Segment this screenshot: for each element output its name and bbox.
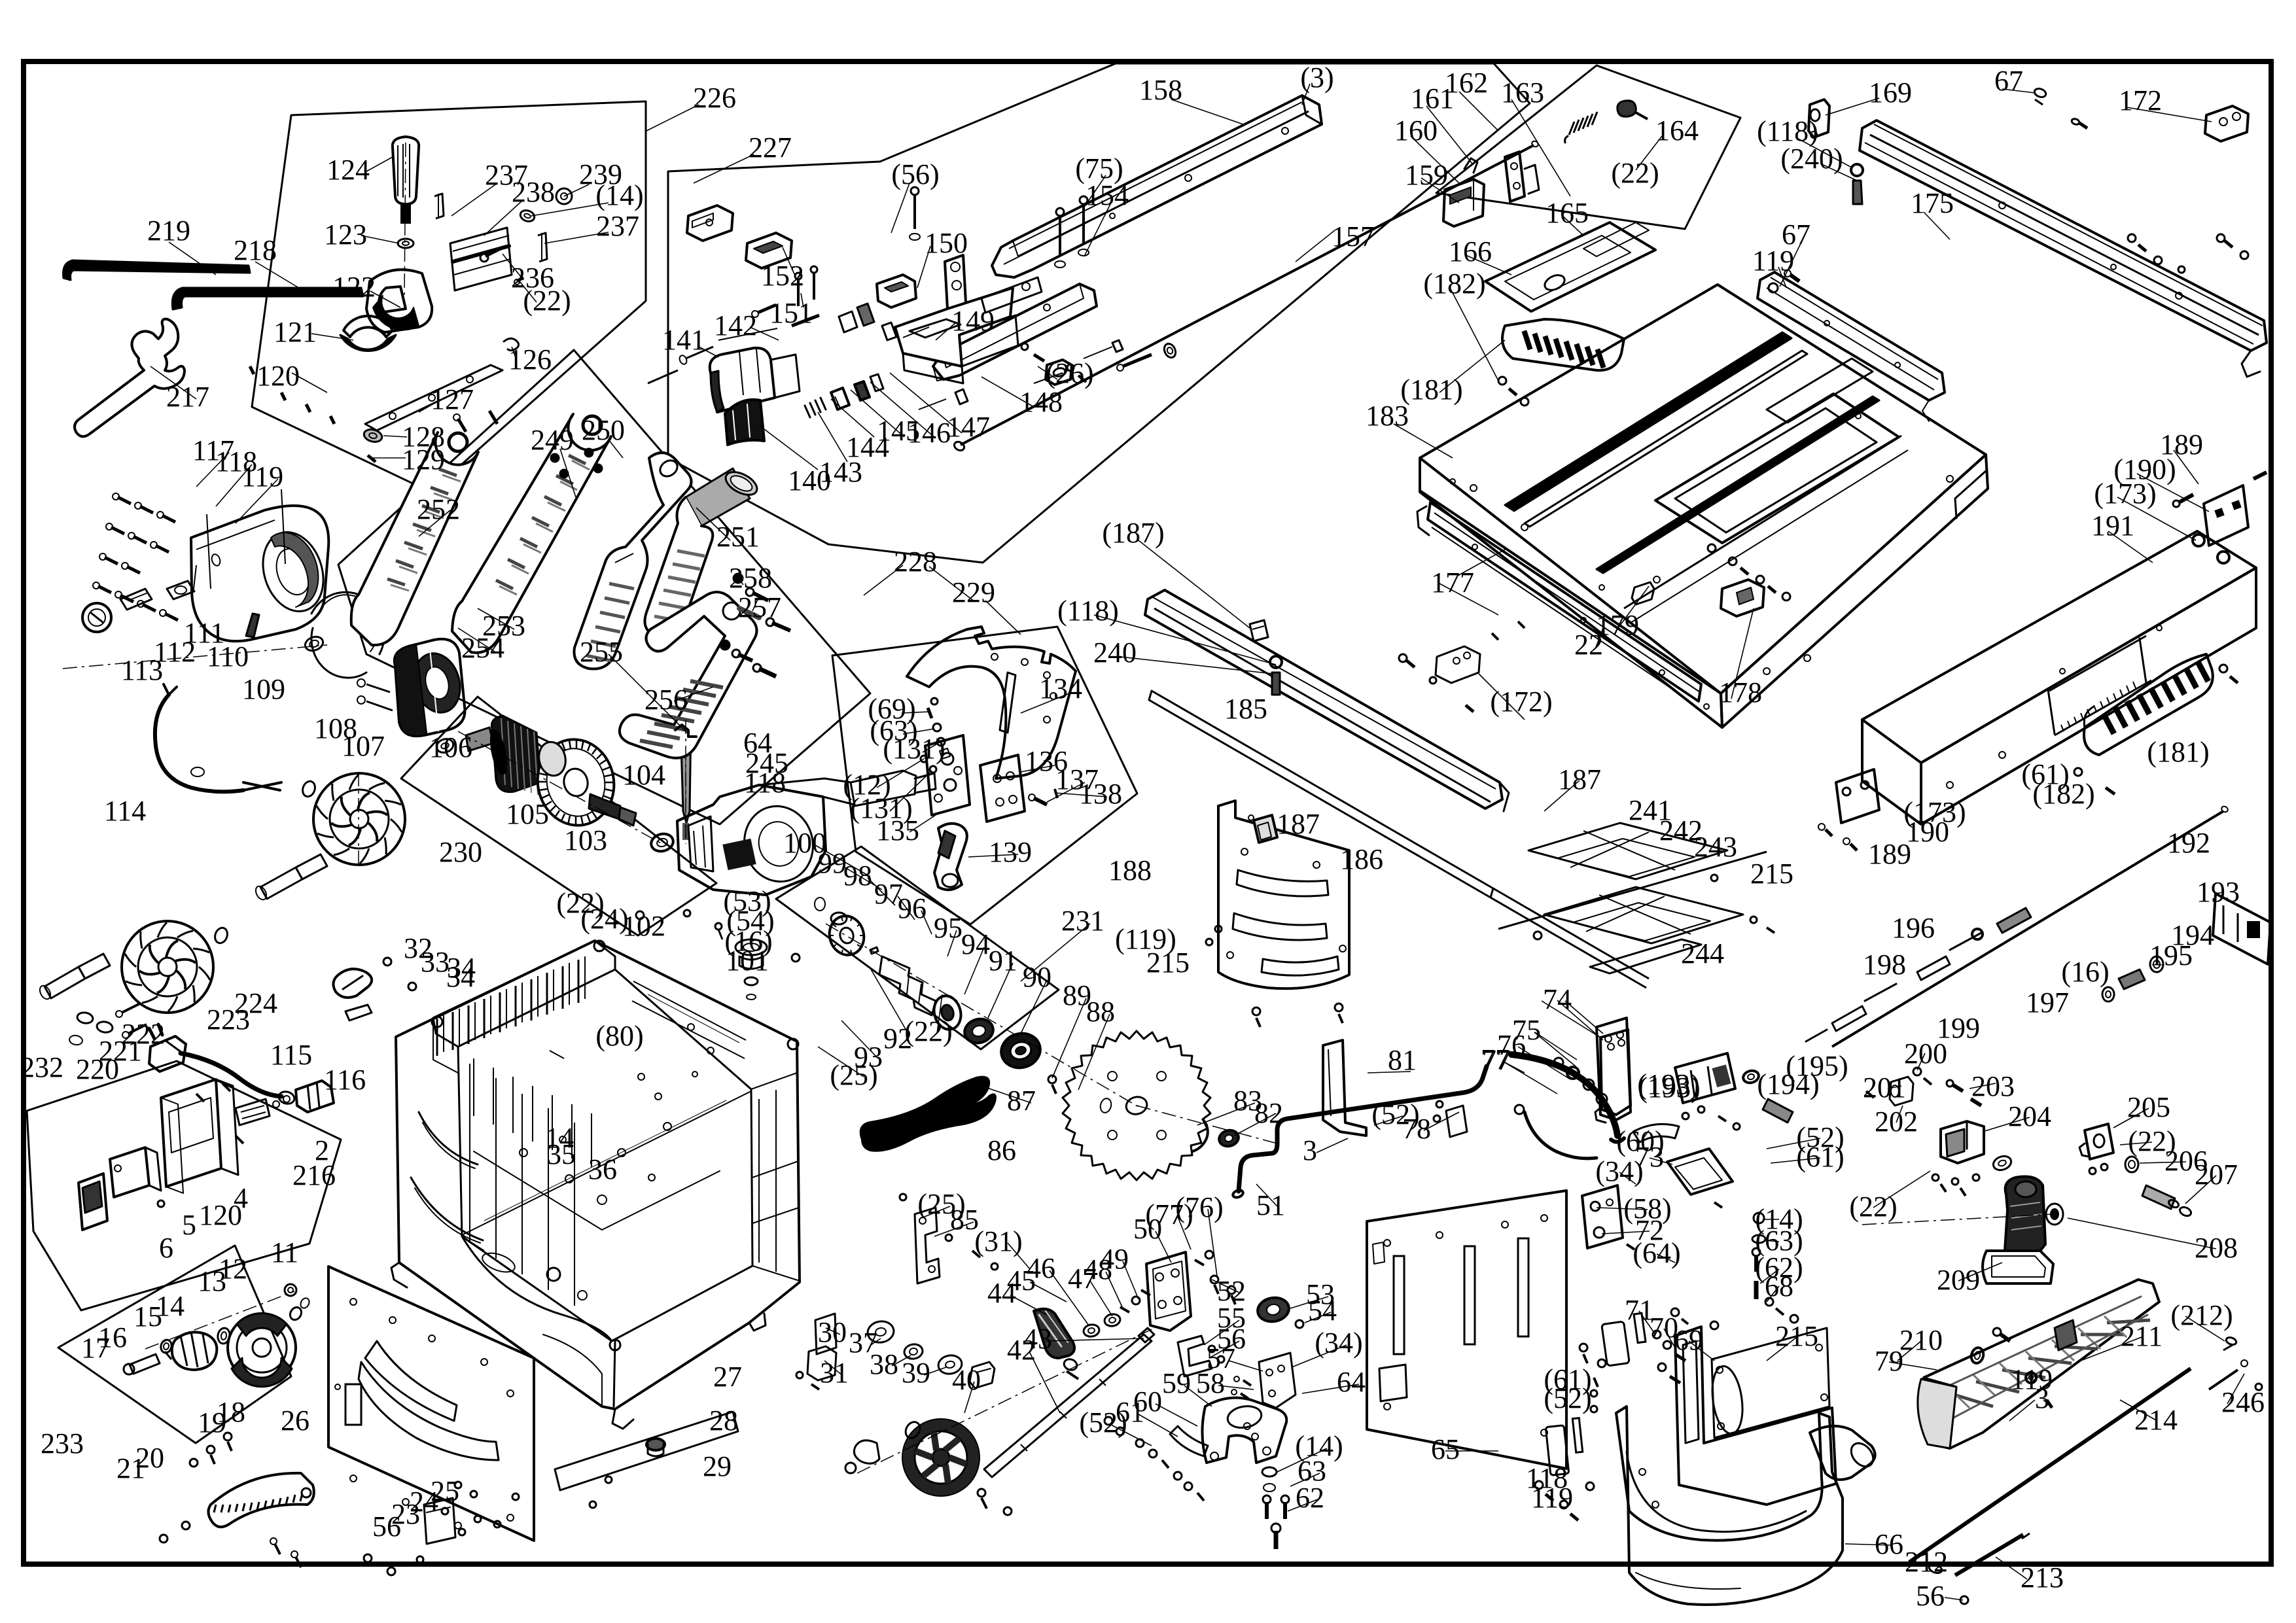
svg-text:123: 123: [324, 218, 367, 251]
svg-text:119: 119: [241, 461, 283, 493]
svg-text:134: 134: [1039, 672, 1082, 705]
svg-text:211: 211: [2121, 1320, 2163, 1352]
svg-text:203: 203: [1971, 1070, 2015, 1102]
svg-text:29: 29: [703, 1450, 732, 1482]
svg-text:215: 215: [1146, 947, 1190, 979]
svg-text:96: 96: [898, 892, 927, 924]
svg-text:138: 138: [1079, 778, 1122, 810]
svg-text:197: 197: [2026, 986, 2069, 1019]
svg-text:86: 86: [987, 1134, 1016, 1166]
svg-text:82: 82: [1254, 1097, 1283, 1129]
svg-text:28: 28: [709, 1405, 738, 1437]
svg-text:(181): (181): [1400, 374, 1462, 406]
svg-text:(61): (61): [1796, 1141, 1844, 1173]
svg-text:135: 135: [876, 814, 919, 846]
svg-text:105: 105: [506, 798, 549, 830]
svg-text:229: 229: [952, 576, 995, 608]
svg-text:150: 150: [925, 227, 968, 259]
svg-text:202: 202: [1875, 1106, 1918, 1138]
svg-text:192: 192: [2167, 827, 2210, 859]
svg-text:(22): (22): [1849, 1191, 1897, 1223]
svg-text:146: 146: [908, 417, 951, 449]
svg-text:209: 209: [1937, 1264, 1980, 1296]
svg-text:67: 67: [1994, 65, 2023, 97]
svg-text:139: 139: [989, 836, 1032, 868]
svg-text:233: 233: [41, 1427, 84, 1459]
svg-text:258: 258: [729, 562, 772, 594]
svg-text:110: 110: [207, 640, 249, 672]
svg-text:(182): (182): [2032, 778, 2094, 810]
svg-text:217: 217: [166, 381, 209, 413]
svg-text:120: 120: [256, 360, 300, 392]
svg-text:210: 210: [1899, 1324, 1943, 1356]
svg-text:20: 20: [135, 1442, 164, 1474]
svg-text:189: 189: [1868, 838, 1911, 870]
svg-text:62: 62: [1296, 1482, 1324, 1514]
svg-text:77: 77: [1481, 1043, 1510, 1075]
svg-text:3: 3: [1303, 1134, 1317, 1166]
svg-text:65: 65: [1431, 1433, 1460, 1465]
svg-text:226: 226: [693, 82, 736, 114]
svg-text:19: 19: [198, 1406, 226, 1439]
svg-text:74: 74: [1543, 983, 1572, 1015]
svg-text:102: 102: [622, 910, 665, 942]
svg-text:198: 198: [1863, 949, 1906, 981]
svg-text:255: 255: [580, 636, 623, 668]
svg-text:246: 246: [2221, 1386, 2265, 1418]
svg-text:240: 240: [1093, 637, 1137, 669]
svg-text:81: 81: [1388, 1044, 1417, 1076]
svg-text:(212): (212): [2170, 1299, 2233, 1331]
svg-text:201: 201: [1863, 1072, 1906, 1104]
svg-text:13: 13: [198, 1265, 226, 1297]
svg-text:148: 148: [1019, 386, 1063, 418]
svg-text:3: 3: [2035, 1382, 2049, 1414]
svg-text:147: 147: [947, 411, 990, 443]
svg-text:215: 215: [1775, 1320, 1818, 1352]
svg-text:152: 152: [761, 260, 804, 292]
svg-text:(3): (3): [1300, 61, 1333, 94]
svg-text:106: 106: [429, 731, 472, 763]
svg-text:223: 223: [207, 1003, 250, 1036]
svg-text:164: 164: [1655, 114, 1699, 147]
svg-text:(25): (25): [830, 1059, 877, 1091]
svg-text:22: 22: [1574, 629, 1603, 661]
svg-text:175: 175: [1911, 187, 1954, 219]
svg-text:200: 200: [1904, 1038, 1947, 1070]
svg-text:(76): (76): [1175, 1191, 1223, 1223]
svg-text:129: 129: [402, 444, 445, 476]
svg-text:122: 122: [332, 271, 376, 303]
svg-text:230: 230: [439, 836, 482, 868]
svg-text:49: 49: [1100, 1243, 1129, 1275]
svg-text:196: 196: [1892, 912, 1935, 944]
svg-text:99: 99: [818, 847, 847, 879]
svg-text:215: 215: [1750, 858, 1793, 890]
svg-text:91: 91: [989, 945, 1017, 977]
svg-text:141: 141: [662, 324, 705, 356]
svg-text:31: 31: [820, 1357, 849, 1389]
svg-text:177: 177: [1431, 567, 1474, 599]
svg-text:232: 232: [20, 1051, 63, 1083]
svg-text:214: 214: [2134, 1404, 2178, 1436]
svg-text:195: 195: [2149, 939, 2193, 971]
svg-text:163: 163: [1501, 77, 1544, 109]
svg-text:(182): (182): [1423, 268, 1485, 300]
svg-text:127: 127: [431, 383, 474, 415]
svg-text:126: 126: [508, 343, 552, 375]
svg-text:(173): (173): [2094, 478, 2156, 510]
svg-text:212: 212: [1905, 1546, 1948, 1578]
svg-text:116: 116: [324, 1064, 366, 1096]
svg-text:191: 191: [2091, 510, 2134, 542]
svg-text:35: 35: [547, 1138, 576, 1170]
svg-text:154: 154: [1086, 179, 1129, 211]
svg-text:66: 66: [1875, 1528, 1903, 1560]
svg-text:(240): (240): [1780, 143, 1843, 175]
svg-text:(187): (187): [1102, 517, 1164, 549]
svg-text:257: 257: [738, 591, 781, 623]
svg-text:109: 109: [242, 673, 285, 705]
svg-text:26: 26: [281, 1405, 309, 1437]
svg-text:256: 256: [645, 684, 688, 716]
svg-text:36: 36: [588, 1153, 617, 1185]
svg-text:208: 208: [2195, 1232, 2238, 1264]
svg-text:227: 227: [749, 131, 792, 164]
svg-text:187: 187: [1558, 763, 1601, 795]
svg-text:249: 249: [531, 424, 574, 456]
svg-text:237: 237: [596, 210, 639, 242]
svg-text:(56): (56): [891, 158, 939, 190]
svg-text:(24): (24): [580, 903, 628, 935]
svg-text:119: 119: [1531, 1482, 1573, 1514]
svg-text:121: 121: [274, 316, 317, 348]
svg-text:238: 238: [512, 176, 555, 208]
svg-text:(16): (16): [2061, 956, 2109, 988]
svg-text:(22): (22): [904, 1015, 952, 1047]
svg-text:252: 252: [417, 493, 460, 525]
svg-text:(193): (193): [1638, 1072, 1700, 1104]
svg-text:103: 103: [564, 824, 607, 856]
svg-text:33: 33: [421, 946, 450, 978]
svg-text:43: 43: [1023, 1323, 1052, 1355]
svg-text:(26): (26): [1046, 357, 1093, 389]
svg-text:(22): (22): [523, 285, 571, 317]
svg-text:165: 165: [1545, 197, 1589, 229]
svg-text:40: 40: [952, 1364, 981, 1396]
svg-text:(34): (34): [1595, 1155, 1643, 1187]
svg-text:(31): (31): [974, 1225, 1022, 1257]
svg-text:95: 95: [934, 912, 963, 944]
svg-text:119: 119: [1752, 245, 1794, 277]
svg-text:186: 186: [1340, 843, 1383, 875]
svg-text:68: 68: [1765, 1270, 1793, 1302]
svg-text:166: 166: [1449, 236, 1492, 268]
svg-text:54: 54: [1308, 1295, 1337, 1327]
svg-text:188: 188: [1108, 854, 1152, 886]
svg-text:187: 187: [1277, 808, 1320, 840]
svg-text:159: 159: [1405, 159, 1448, 191]
svg-text:231: 231: [1061, 905, 1104, 937]
svg-text:17: 17: [81, 1332, 110, 1364]
svg-text:25: 25: [431, 1475, 459, 1507]
svg-text:27: 27: [713, 1361, 742, 1393]
svg-text:(64): (64): [1633, 1237, 1680, 1269]
svg-text:58: 58: [1196, 1367, 1225, 1399]
svg-text:104: 104: [622, 759, 665, 791]
svg-text:124: 124: [327, 154, 370, 186]
svg-text:190: 190: [1906, 816, 1949, 848]
svg-text:39: 39: [902, 1357, 930, 1389]
svg-text:64: 64: [1337, 1366, 1366, 1398]
svg-text:243: 243: [1694, 831, 1737, 863]
svg-text:(131): (131): [883, 733, 945, 765]
svg-text:178: 178: [1719, 676, 1762, 708]
svg-text:107: 107: [342, 730, 385, 762]
svg-text:34: 34: [447, 952, 476, 984]
svg-text:46: 46: [1027, 1252, 1055, 1284]
svg-text:158: 158: [1139, 74, 1182, 106]
svg-text:218: 218: [234, 234, 277, 266]
svg-text:151: 151: [769, 297, 813, 329]
svg-text:79: 79: [1875, 1345, 1903, 1377]
svg-text:183: 183: [1366, 400, 1409, 432]
svg-text:219: 219: [147, 215, 190, 247]
svg-text:207: 207: [2195, 1159, 2238, 1191]
svg-text:(52): (52): [1079, 1406, 1127, 1439]
svg-text:78: 78: [1402, 1113, 1431, 1145]
svg-text:5: 5: [182, 1209, 196, 1241]
svg-text:213: 213: [2021, 1562, 2064, 1594]
svg-text:(80): (80): [595, 1020, 643, 1052]
svg-text:15: 15: [133, 1300, 162, 1333]
svg-text:56: 56: [1916, 1580, 1945, 1612]
svg-text:6: 6: [159, 1232, 173, 1264]
svg-text:193: 193: [2197, 876, 2240, 908]
svg-text:228: 228: [894, 546, 937, 578]
svg-text:254: 254: [461, 632, 504, 664]
svg-text:185: 185: [1224, 693, 1267, 725]
svg-text:118: 118: [744, 767, 786, 799]
svg-text:(172): (172): [1490, 686, 1552, 718]
svg-text:216: 216: [292, 1159, 336, 1191]
svg-text:205: 205: [2127, 1091, 2170, 1123]
svg-text:(34): (34): [1315, 1327, 1362, 1359]
svg-text:250: 250: [582, 414, 625, 446]
svg-text:169: 169: [1869, 77, 1912, 109]
svg-text:113: 113: [121, 654, 163, 686]
svg-text:38: 38: [870, 1348, 898, 1380]
svg-text:69: 69: [1674, 1324, 1703, 1356]
svg-text:161: 161: [1411, 82, 1454, 114]
svg-text:11: 11: [271, 1236, 298, 1268]
svg-text:204: 204: [2008, 1100, 2051, 1132]
svg-text:101: 101: [726, 945, 769, 977]
svg-text:98: 98: [843, 860, 872, 892]
svg-text:115: 115: [270, 1039, 312, 1071]
svg-text:220: 220: [76, 1053, 119, 1085]
svg-text:30: 30: [818, 1316, 847, 1348]
svg-text:157: 157: [1332, 220, 1375, 253]
svg-text:90: 90: [1023, 961, 1051, 993]
svg-text:87: 87: [1007, 1085, 1036, 1117]
svg-text:(52): (52): [1544, 1382, 1591, 1414]
svg-text:88: 88: [1086, 996, 1115, 1028]
svg-text:(22): (22): [1611, 157, 1659, 189]
svg-text:51: 51: [1256, 1189, 1285, 1221]
svg-text:(181): (181): [2147, 736, 2209, 768]
svg-text:149: 149: [951, 305, 995, 337]
svg-text:244: 244: [1681, 937, 1724, 969]
svg-text:(194): (194): [1757, 1068, 1819, 1100]
svg-text:142: 142: [714, 309, 757, 341]
svg-text:160: 160: [1394, 114, 1438, 147]
svg-text:114: 114: [104, 795, 146, 827]
svg-text:(118): (118): [1057, 595, 1119, 627]
svg-text:251: 251: [716, 521, 760, 553]
svg-text:94: 94: [961, 928, 990, 960]
svg-text:120: 120: [199, 1199, 242, 1231]
svg-text:172: 172: [2119, 84, 2162, 116]
svg-text:(14): (14): [595, 179, 643, 211]
svg-text:59: 59: [1162, 1367, 1191, 1399]
